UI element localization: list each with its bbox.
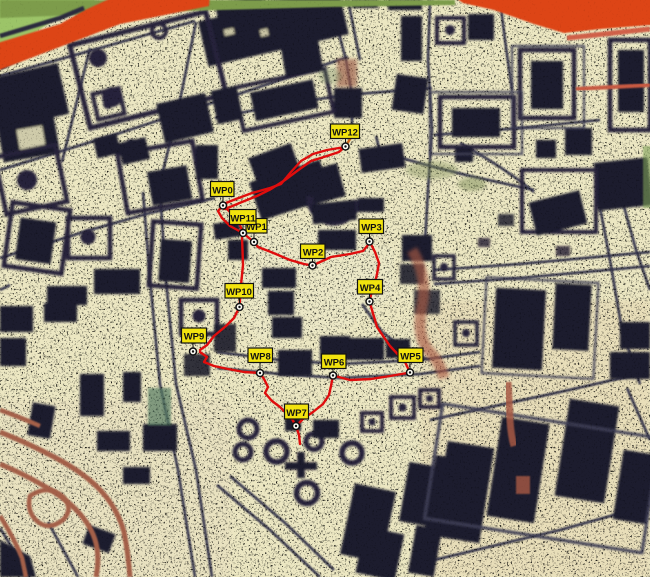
svg-text:WP8: WP8 bbox=[250, 352, 271, 363]
svg-text:WP3: WP3 bbox=[361, 223, 382, 234]
svg-text:WP2: WP2 bbox=[303, 248, 324, 259]
svg-text:WP10: WP10 bbox=[226, 287, 252, 298]
svg-text:WP11: WP11 bbox=[230, 214, 256, 225]
svg-text:WP7: WP7 bbox=[286, 408, 307, 419]
svg-text:WP12: WP12 bbox=[332, 128, 358, 139]
svg-text:WP0: WP0 bbox=[212, 186, 233, 197]
svg-text:WP5: WP5 bbox=[400, 352, 421, 363]
svg-text:WP4: WP4 bbox=[360, 283, 381, 294]
svg-text:WP9: WP9 bbox=[184, 332, 205, 343]
svg-text:WP6: WP6 bbox=[324, 358, 345, 369]
